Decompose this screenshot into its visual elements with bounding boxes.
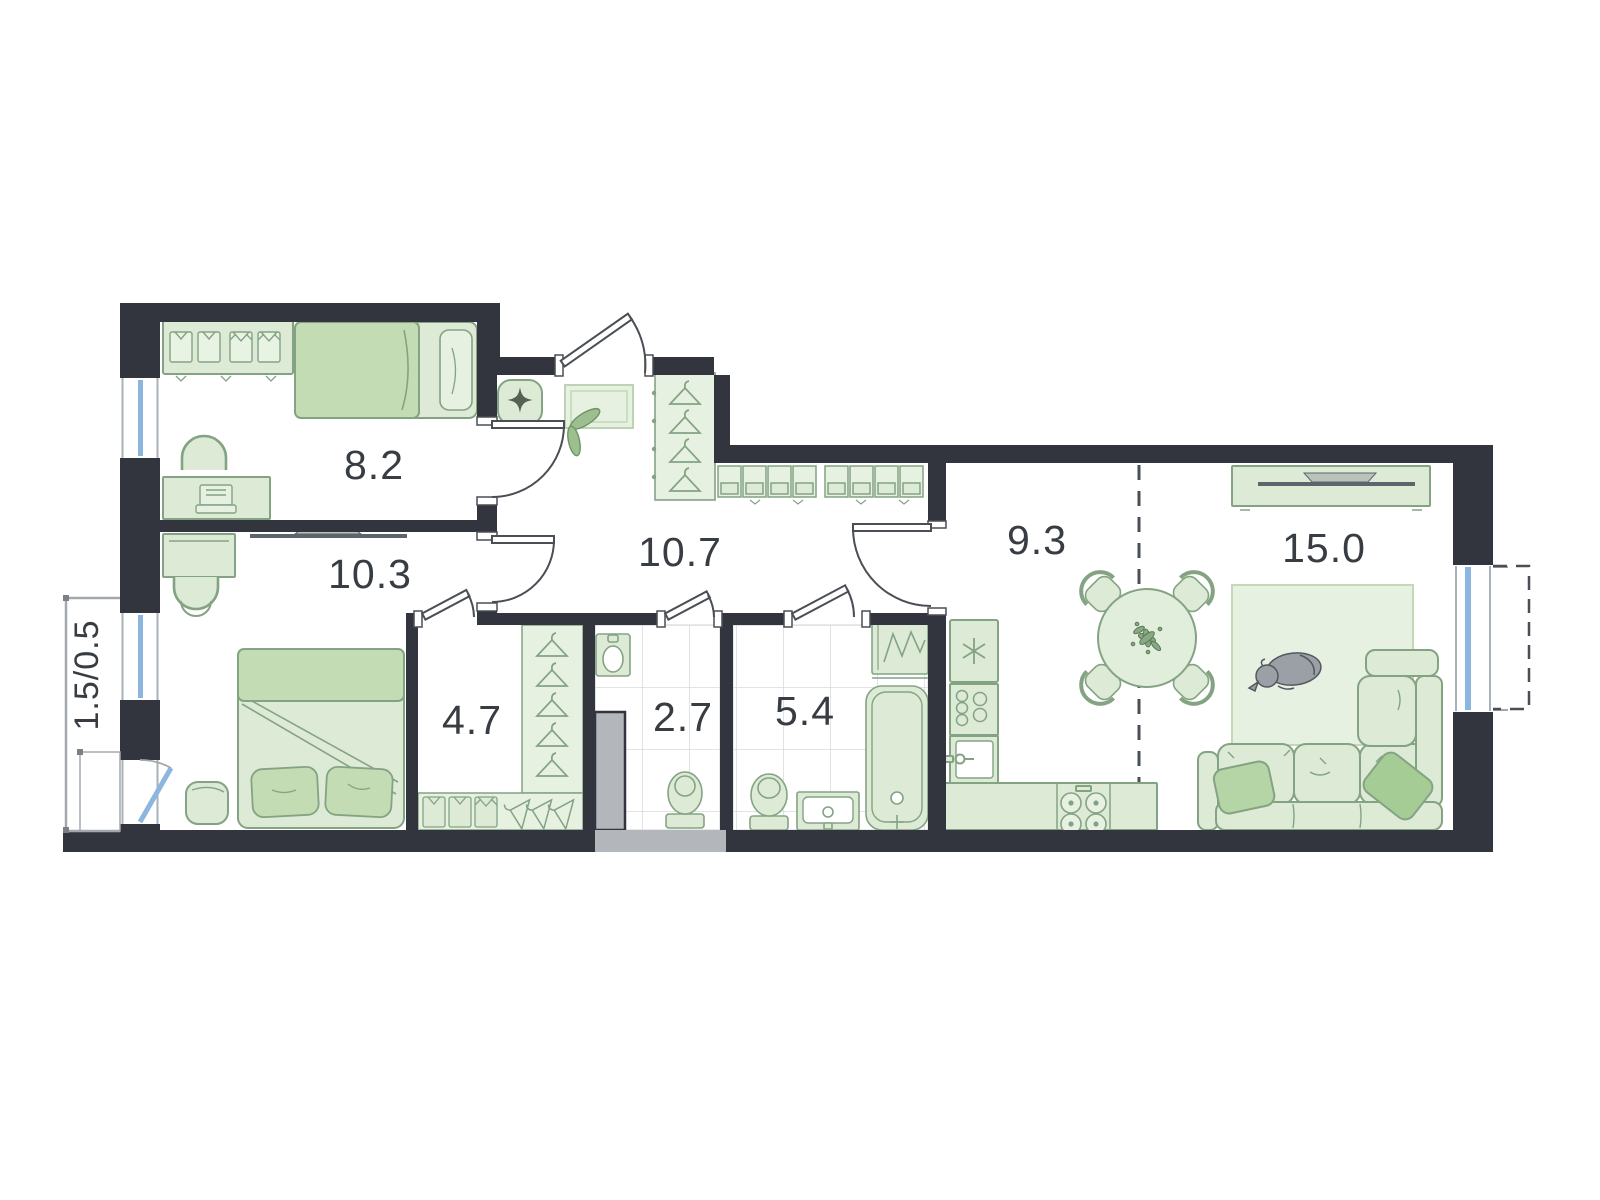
label-bedroom-small: 8.2 (344, 442, 404, 488)
hanger-rail (522, 625, 583, 793)
vanity-sink (797, 792, 859, 830)
door-bathroom (792, 585, 854, 619)
shirt-icon (475, 797, 497, 827)
label-wc: 2.7 (653, 694, 713, 740)
tv-console (1232, 466, 1430, 510)
folded-clothes-icon (449, 797, 471, 827)
label-bedroom-master: 10.3 (328, 551, 412, 597)
hallway-furniture (498, 373, 923, 504)
folded-clothes-icon (423, 797, 445, 827)
window-bedroom-small (123, 378, 158, 458)
folded-clothes-icon (198, 332, 220, 362)
window-bedroom-master (123, 613, 158, 700)
bottom-wall-duct (595, 830, 726, 852)
open-wardrobe (652, 373, 715, 500)
sofa-head-cushion (1366, 650, 1438, 676)
door-bedroom-master (492, 536, 554, 602)
toilet (666, 772, 704, 828)
folded-clothes-icon (170, 332, 192, 362)
window-annex-outline (1493, 566, 1529, 709)
pillow (325, 766, 393, 817)
floor-plan: 8.2 10.3 10.7 4.7 2.7 5.4 9.3 15.0 1.5/0… (0, 0, 1600, 1200)
entry-door (561, 314, 646, 373)
utility-shaft (595, 712, 625, 830)
label-balcony: 1.5/0.5 (68, 620, 106, 731)
bedroom-small-furniture (163, 320, 477, 519)
shirt-icon (230, 332, 252, 362)
balcony-door-jambs (123, 760, 158, 824)
kitchen-sink (944, 736, 998, 783)
bathtub (866, 686, 928, 830)
hand-sink (596, 634, 630, 676)
wardrobe-feet (176, 376, 276, 381)
living-room-furniture (1198, 466, 1442, 830)
window-living-room (1456, 566, 1508, 711)
label-living-room: 15.0 (1282, 525, 1366, 571)
floor-plan-drawing: 8.2 10.3 10.7 4.7 2.7 5.4 9.3 15.0 1.5/0… (0, 0, 1600, 1200)
door-closet (422, 590, 474, 620)
toilet (750, 774, 788, 830)
sofa-seat (1358, 676, 1416, 746)
double-bed (238, 649, 404, 828)
desk-chair (182, 436, 226, 470)
kitchen-counter (944, 783, 1157, 834)
label-closet: 4.7 (442, 697, 502, 743)
balcony-door (140, 760, 171, 822)
door-kitchen (853, 524, 931, 606)
label-kitchen: 9.3 (1007, 517, 1067, 563)
label-hallway: 10.7 (638, 529, 722, 575)
fridge (950, 620, 998, 682)
washing-machine (872, 618, 928, 678)
shirt-icon (258, 332, 280, 362)
stove-control (1076, 786, 1091, 791)
kitchen-furniture (944, 564, 1221, 834)
single-bed (295, 322, 477, 418)
kitchen-cabinet (950, 684, 998, 735)
label-bathroom: 5.4 (775, 688, 835, 734)
laptop-icon (196, 485, 236, 513)
dining-set (1073, 564, 1220, 711)
shoe-cabinets (718, 466, 923, 504)
door-wc (665, 591, 714, 619)
pouf (186, 782, 228, 824)
door-bedroom-small (492, 421, 564, 497)
